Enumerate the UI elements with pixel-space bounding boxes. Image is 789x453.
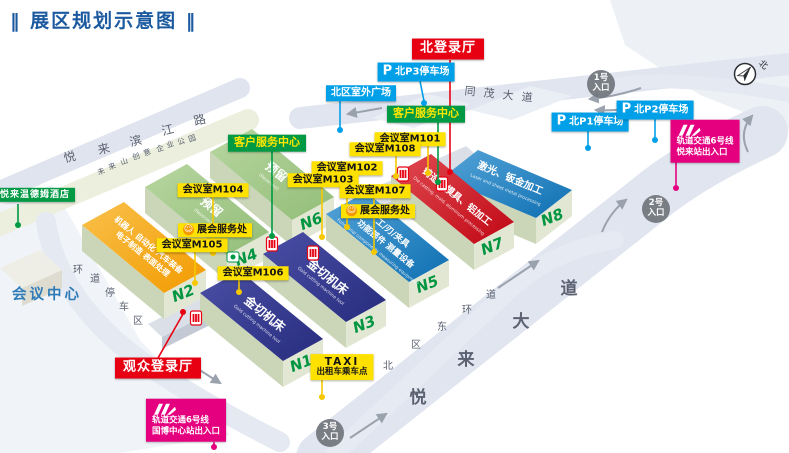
badge-label: 北P1停车场 [569,116,623,128]
road-char: 道 [521,89,533,104]
badge-label: 展会服务处 [197,224,247,236]
road-char: 来 [457,349,476,370]
page-title: ‖ 展区规划示意图 ‖ [10,6,197,33]
road-char: 区 [411,339,421,351]
badge-label: 北区室外广场 [331,87,391,99]
road-char: 道 [486,288,496,301]
badge-expo-service-west: ☺展会服务处 [178,223,252,237]
parking-icon: P [622,103,632,118]
road-char: 道 [90,272,100,285]
badge-north-outdoor-plaza: 北区室外广场 [326,85,396,101]
road-char: 环 [73,265,83,276]
crt-logo [152,403,178,416]
exhibition-map: N8 激光、钣金加工 Laser and sheet metal process… [0,0,789,453]
road-char: 环 [462,305,472,316]
badge-label: 会议室M108 [355,143,416,155]
badge-taxi-stand: TAXI 出租车乘车点 [310,354,373,380]
badge-customer-service-east: 客户服务中心 [387,106,465,123]
badge-label: 会议室M102 [317,162,378,174]
badge-meeting-room-m104: 会议室M104 [178,183,249,197]
title-decor: ‖ [10,10,22,32]
badge-label: 悦来温德姆酒店 [0,190,70,200]
badge-visitor-login-hall: 观众登录厅 [115,358,201,379]
road-char: 区 [133,315,143,327]
taxi-sublabel: 出租车乘车点 [316,368,367,378]
badge-label: 展会服务处 [360,205,410,217]
gate-icon [191,311,202,325]
metro-station-label: 悦来站出入口 [677,149,728,159]
badge-north-login-hall: 北登录厅 [412,39,484,60]
gate-icon [267,237,278,251]
parking-icon: P [383,65,393,80]
badge-expo-service-east: ☺展会服务处 [341,204,415,218]
entrance-1-marker: 1号入口 [587,70,615,98]
gate-icon [308,246,319,260]
smiley-icon: ☺ [346,206,357,217]
entrance-3-marker: 3号入口 [316,419,344,447]
road-char: 道 [561,278,578,299]
metro-line-label: 轨道交通6号线 [677,138,734,148]
metro-line-label: 轨道交通6号线 [152,417,209,427]
badge-label: 会议室M105 [162,239,223,251]
metro-station-label: 国博中心站出入口 [152,428,220,438]
badge-meeting-room-m105: 会议室M105 [157,238,228,252]
badge-label: 会议室M106 [223,267,284,279]
gate-icon [398,167,409,181]
title-decor: ‖ [186,10,198,32]
road-char: 悦 [410,387,427,408]
service-point-icon [227,252,239,262]
entrance-2-marker: 2号入口 [642,195,670,223]
badge-label: 北登录厅 [420,42,476,57]
entrance-suffix: 入口 [321,433,338,443]
entrance-suffix: 入口 [592,84,609,94]
title-text: 展区规划示意图 [30,10,177,32]
badge-label: 客户服务中心 [234,137,300,150]
badge-meeting-room-m107: 会议室M107 [340,184,411,198]
road-char: 车 [119,300,129,313]
road-char: 停 [105,286,115,299]
badge-meeting-room-m106: 会议室M106 [218,266,289,280]
smiley-icon: ☺ [183,225,194,236]
badge-label: 客户服务中心 [393,108,459,121]
badge-parking-p3: P北P3停车场 [378,63,455,82]
badge-label: 北P2停车场 [634,104,688,116]
label-text: 会议中心 [12,287,82,303]
road-char: 大 [513,311,530,332]
road-char: 同 [464,84,476,98]
badge-label: 北P3停车场 [395,66,449,78]
parking-icon: P [557,115,567,130]
badge-metro-guobo-station: 轨道交通6号线 国博中心站出入口 [146,399,226,442]
badge-wyndham-hotel: 悦来温德姆酒店 [0,188,75,202]
road-char: 北 [383,360,393,372]
badge-label: 会议室M107 [345,185,406,197]
badge-label: 会议室M104 [183,184,244,196]
crt-logo [677,124,703,137]
badge-metro-yuelai-station: 轨道交通6号线 悦来站出入口 [671,120,740,163]
badge-customer-service-west: 客户服务中心 [228,135,306,152]
badge-parking-p2: P北P2停车场 [617,101,694,120]
road-char: 茂 [483,85,495,100]
conference-center-label: 会议中心 [12,283,82,304]
badge-meeting-room-m108: 会议室M108 [350,142,421,156]
road-char: 大 [502,87,514,102]
entrance-suffix: 入口 [647,209,664,219]
road-char: 东 [437,320,447,333]
badge-label: 观众登录厅 [123,361,193,376]
